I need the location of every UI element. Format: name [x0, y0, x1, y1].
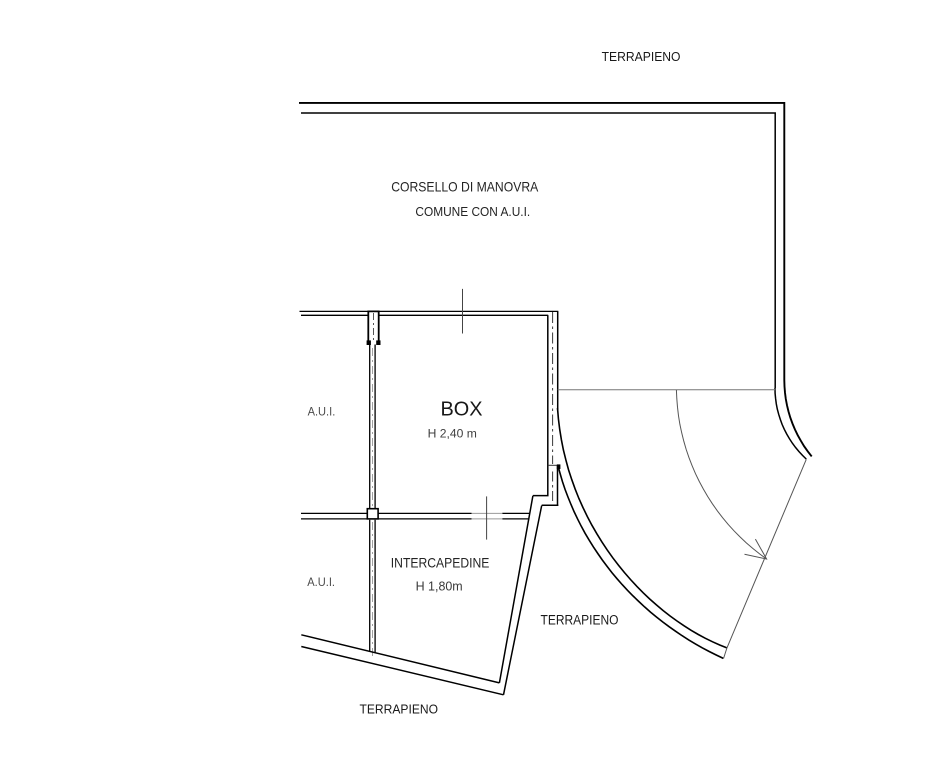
svg-text:CORSELLO DI MANOVRA: CORSELLO DI MANOVRA	[391, 180, 539, 195]
svg-text:A.U.I.: A.U.I.	[307, 577, 335, 589]
svg-text:TERRAPIENO: TERRAPIENO	[541, 613, 619, 628]
svg-text:TERRAPIENO: TERRAPIENO	[602, 49, 681, 64]
svg-text:A.U.I.: A.U.I.	[308, 406, 336, 418]
svg-text:INTERCAPEDINE: INTERCAPEDINE	[391, 555, 490, 571]
svg-text:BOX: BOX	[441, 399, 483, 421]
svg-text:H 1,80m: H 1,80m	[416, 579, 463, 594]
svg-text:COMUNE CON A.U.I.: COMUNE CON A.U.I.	[415, 204, 530, 219]
svg-text:H 2,40 m: H 2,40 m	[428, 426, 477, 440]
svg-text:TERRAPIENO: TERRAPIENO	[360, 702, 439, 717]
